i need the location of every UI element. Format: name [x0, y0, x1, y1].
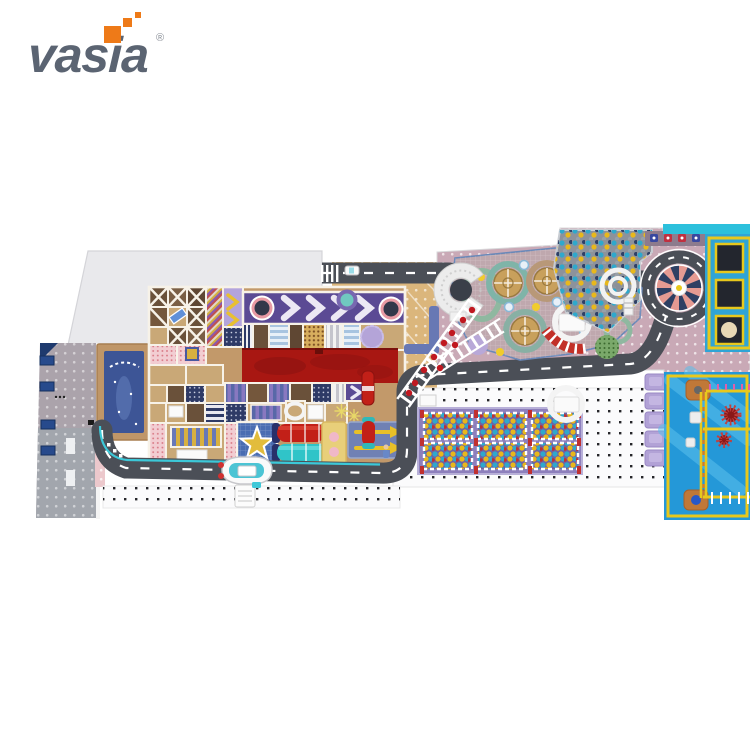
playground-floor-plan [0, 0, 750, 750]
child-figure [384, 445, 389, 450]
obstacle-cells [223, 324, 405, 350]
shoe-shelf [41, 446, 55, 455]
spin-fan [724, 408, 738, 422]
climbing-grid [149, 287, 206, 347]
climbing-mound [506, 312, 544, 350]
cyan-top-wall [663, 224, 750, 234]
soft-play-structure [149, 267, 439, 466]
entry-walkway [36, 343, 100, 519]
tube-slide-cyan [272, 444, 329, 462]
product-page: vasia ® [0, 0, 750, 750]
tube-slide-drop [362, 371, 374, 405]
bench [66, 470, 75, 486]
tube-slide-red [272, 423, 325, 443]
red-carpet [242, 348, 398, 383]
flower-pad [361, 326, 383, 348]
rope-ladder [205, 403, 225, 423]
step-pad [690, 412, 701, 423]
striped-climb-lane [206, 287, 223, 347]
striped-crawl-mat [171, 427, 221, 447]
spin-fan [719, 435, 729, 445]
floor-mat [420, 395, 436, 406]
sparkle-decal [335, 405, 348, 418]
bench [66, 438, 75, 454]
shoe-shelf [41, 420, 55, 429]
foam-ball [721, 322, 737, 338]
roller-obstacle [225, 383, 247, 403]
pegboard [303, 324, 325, 350]
chevron-runway [243, 292, 405, 324]
yellow-chevron-lane [223, 287, 243, 327]
sensory-box [186, 348, 198, 360]
boat-banner [235, 485, 255, 507]
roller-bag [362, 421, 375, 445]
shoe-shelf [40, 382, 54, 391]
trampoline-wall [705, 234, 750, 352]
shoe-shelf [40, 356, 54, 365]
obstacle-row [149, 383, 369, 403]
toy-car [345, 266, 359, 275]
climbing-mound [489, 264, 527, 302]
trampoline-bed [716, 244, 743, 272]
round-trampoline [379, 297, 404, 322]
crossing-course [664, 372, 750, 520]
slide-landing-panel [322, 422, 346, 466]
step-pad [686, 438, 695, 447]
trampoline-bed [716, 280, 743, 308]
round-trampoline [250, 296, 275, 321]
obstacle-row [149, 401, 347, 423]
